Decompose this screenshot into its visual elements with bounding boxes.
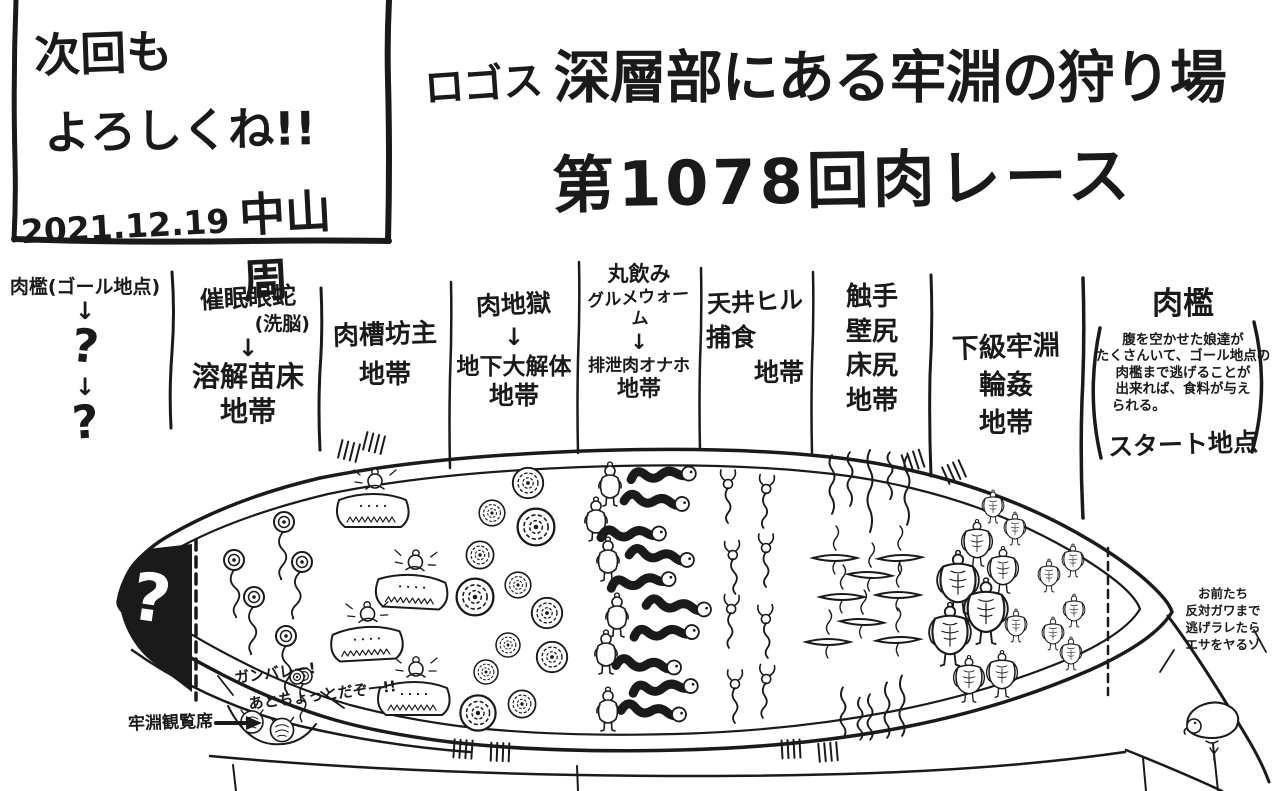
prisoner [982,490,1004,523]
zone-label-lower-prison: 下級牢淵 輪姦 地帯 [934,332,1078,441]
zone-line: 下級牢淵 [951,330,1060,367]
zone-line: 地帯 [754,358,804,389]
prisoner [1005,609,1027,642]
zone-line: 天井ヒル [706,286,803,320]
meat-tub [375,548,450,610]
meat-tub [337,469,409,527]
meat-pit [466,541,493,568]
ceiling-leech [721,470,736,523]
start-zone-desc: 出来れば、食料が与え [1096,381,1270,397]
zone-line: 地帯 [979,408,1033,441]
seal-speech: お前たち 反対ガワまで 逃げラレたら エサをヤるゾ [1170,586,1276,654]
zone-line: 床尻 [846,351,898,383]
page-title: ロゴス 深層部にある牢淵の狩り場 [424,32,1226,114]
prisoner [987,651,1018,698]
racer-girl [599,462,621,506]
poster: 次回も よろしくね!! 2021.12.19 中山 周 ロゴス 深層部にある牢淵… [0,0,1280,791]
tentacles [806,450,923,740]
prisoner [1042,617,1064,650]
zone-line: 輪姦 [979,370,1033,403]
meat-pit [508,690,535,717]
gourmet-worm [630,466,696,486]
prisoner [1063,594,1085,627]
hypno-snake [223,549,249,619]
prisoner-figures [929,490,1085,702]
meat-pits [457,468,568,731]
gourmet-worm [634,625,700,644]
ceiling-leeches [721,470,776,723]
zone-line: 地帯 [220,395,276,429]
zone-label-goal: 肉檻(ゴール地点) ↓ ? ↓ ? [0,276,170,445]
zone-line: 地下大解体 [457,353,572,381]
corner-note-line1: 次回も [33,8,375,86]
prisoner [962,520,993,567]
start-zone-desc: たくさんいて、ゴール地点の [1096,348,1270,364]
start-zone-heading: 肉檻 [1152,286,1214,324]
title-main: 深層部にある牢淵の狩り場 [554,32,1226,114]
meat-tub [329,600,404,662]
zone-line: 触手 [846,282,898,314]
zone-line: 排泄肉オナホ [588,356,690,377]
ceiling-leech [724,541,743,595]
meat-pit [474,660,498,684]
zone-label-tentacle: 触手 壁尻 床尻 地帯 [818,282,926,418]
zone-line: 催眠眼蛇 [199,282,296,316]
ceiling-leech [728,670,743,723]
zone-label-meat-hell: 肉地獄 ↓ 地下大解体 地帯 [452,290,576,411]
ceiling-leech [758,605,776,659]
spectator [270,717,293,741]
hypno-snake [244,587,264,655]
zone-line: 地帯 [846,386,898,418]
meat-pit [532,598,562,628]
meat-pit [496,633,520,657]
hypno-snake [274,512,294,580]
down-arrow-icon: ↓ [630,332,648,353]
corner-note-line2: よろしくね!! [43,91,374,163]
start-zone-desc: 腹を空かせた娘達が [1096,332,1270,348]
gourmet-worm [624,493,690,512]
racer-girl [606,593,628,637]
tentacle [830,455,835,514]
start-zone-desc: られる。 [1112,398,1270,414]
ceiling-leech [759,534,774,587]
ceiling-leech [722,595,740,649]
tentacle [841,687,846,738]
corner-note-date: 2021.12.19 [20,201,231,251]
prisoner [1060,637,1082,670]
zone-label-ceiling-leech: 天井ヒル 捕食 地帯 [702,288,808,388]
seal-speech-line: 反対ガワまで [1170,603,1276,620]
prisoner [1038,559,1060,592]
butt-platform [847,542,893,592]
hypno-snake [286,551,313,621]
zone-line: (洗脳) [255,313,310,336]
zone-label-start: 肉檻 腹を空かせた娘達が たくさんいて、ゴール地点の 肉檻まで逃げることが 出来… [1086,286,1280,461]
question-mark: ? [70,398,100,446]
question-mark: ? [69,322,100,371]
gourmet-worm [646,597,712,617]
zone-line: 肉地獄 [476,288,553,322]
prisoner [1004,512,1026,545]
down-arrow-icon: ↓ [238,336,258,360]
meat-pit [505,572,531,598]
meat-pit [479,500,505,526]
racer-girl [597,687,619,731]
meat-pit [513,468,543,498]
zone-line: 丸飲み [608,262,671,288]
title-small: ロゴス [422,48,544,114]
page-title-line2: 第1078回肉レース [551,125,1134,225]
gourmet-worm [616,657,682,674]
start-zone-desc: 肉檻まで逃げることが [1096,365,1270,381]
zone-line: 捕食 [706,323,756,354]
tentacle [905,456,910,525]
gourmet-worm [632,678,698,699]
zone-line: グルメウォーム [579,284,700,334]
butt-platform [806,610,850,658]
butt-platform [877,525,923,575]
racer-girl [597,537,619,581]
zone-label-gourmet-worm: 丸飲み グルメウォーム ↓ 排泄肉オナホ 地帯 [580,262,698,404]
start-point-label: スタート地点 [1107,428,1258,464]
zone-label-meat-tub: 肉槽坊主 地帯 [322,320,448,391]
zone-line: 地帯 [359,360,411,392]
meat-pit [457,579,494,616]
zone-line: 肉槽坊主 [332,318,437,353]
gourmet-worm [629,547,695,568]
zone-line: 地帯 [617,377,661,404]
seal-speech-line: お前たち [1170,586,1276,603]
butt-platform [813,526,857,574]
zone-line: 壁尻 [846,317,898,349]
meat-pit [518,509,555,546]
zone-line: 肉檻(ゴール地点) [10,276,160,299]
seal-speech-line: 逃げラレたら [1170,620,1276,637]
ceiling-leech [755,664,774,718]
gourmet-worm [621,702,687,722]
zone-line: 溶解苗床 [192,360,304,394]
corner-note: 次回も よろしくね!! 2021.12.19 中山 周 [34,14,374,314]
seal-speech-line: エサをヤるゾ [1170,637,1276,654]
butt-platform [875,607,921,657]
meat-pit [460,695,495,730]
meat-pit [537,642,567,672]
seal-keeper [1184,702,1238,760]
gourmet-worm [610,571,676,594]
zone-label-hypno-snake: 催眠眼蛇 (洗脳) ↓ 溶解苗床 地帯 [178,284,318,429]
tentacle [888,452,893,500]
spectator-seat-label: 牢淵観覧席 [128,707,214,735]
ceiling-leech [756,475,775,529]
down-arrow-icon: ↓ [504,325,524,349]
zone-line: 地帯 [489,381,539,412]
